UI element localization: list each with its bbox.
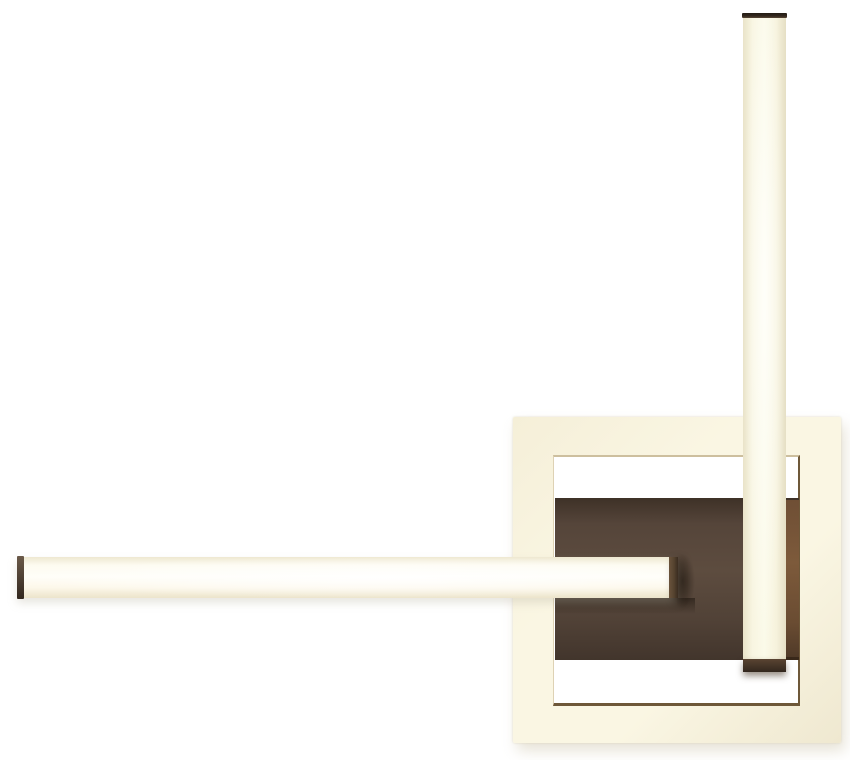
horizontal-led-bar [17,557,678,598]
vertical-led-bar [743,13,786,672]
vertical-bar-glow [743,13,786,672]
horizontal-bar-shadow [555,598,695,614]
horizontal-bar-glow [17,557,678,598]
bar-endcap-shadow [677,554,695,608]
horizontal-bar-right-endcap [669,557,678,598]
horizontal-bar-left-endcap [17,556,24,599]
vertical-bar-bottom-endcap [743,659,786,672]
vertical-bar-top-endcap [742,13,787,18]
product-photo [0,0,850,760]
mounting-plate-lit-edge [784,500,799,660]
